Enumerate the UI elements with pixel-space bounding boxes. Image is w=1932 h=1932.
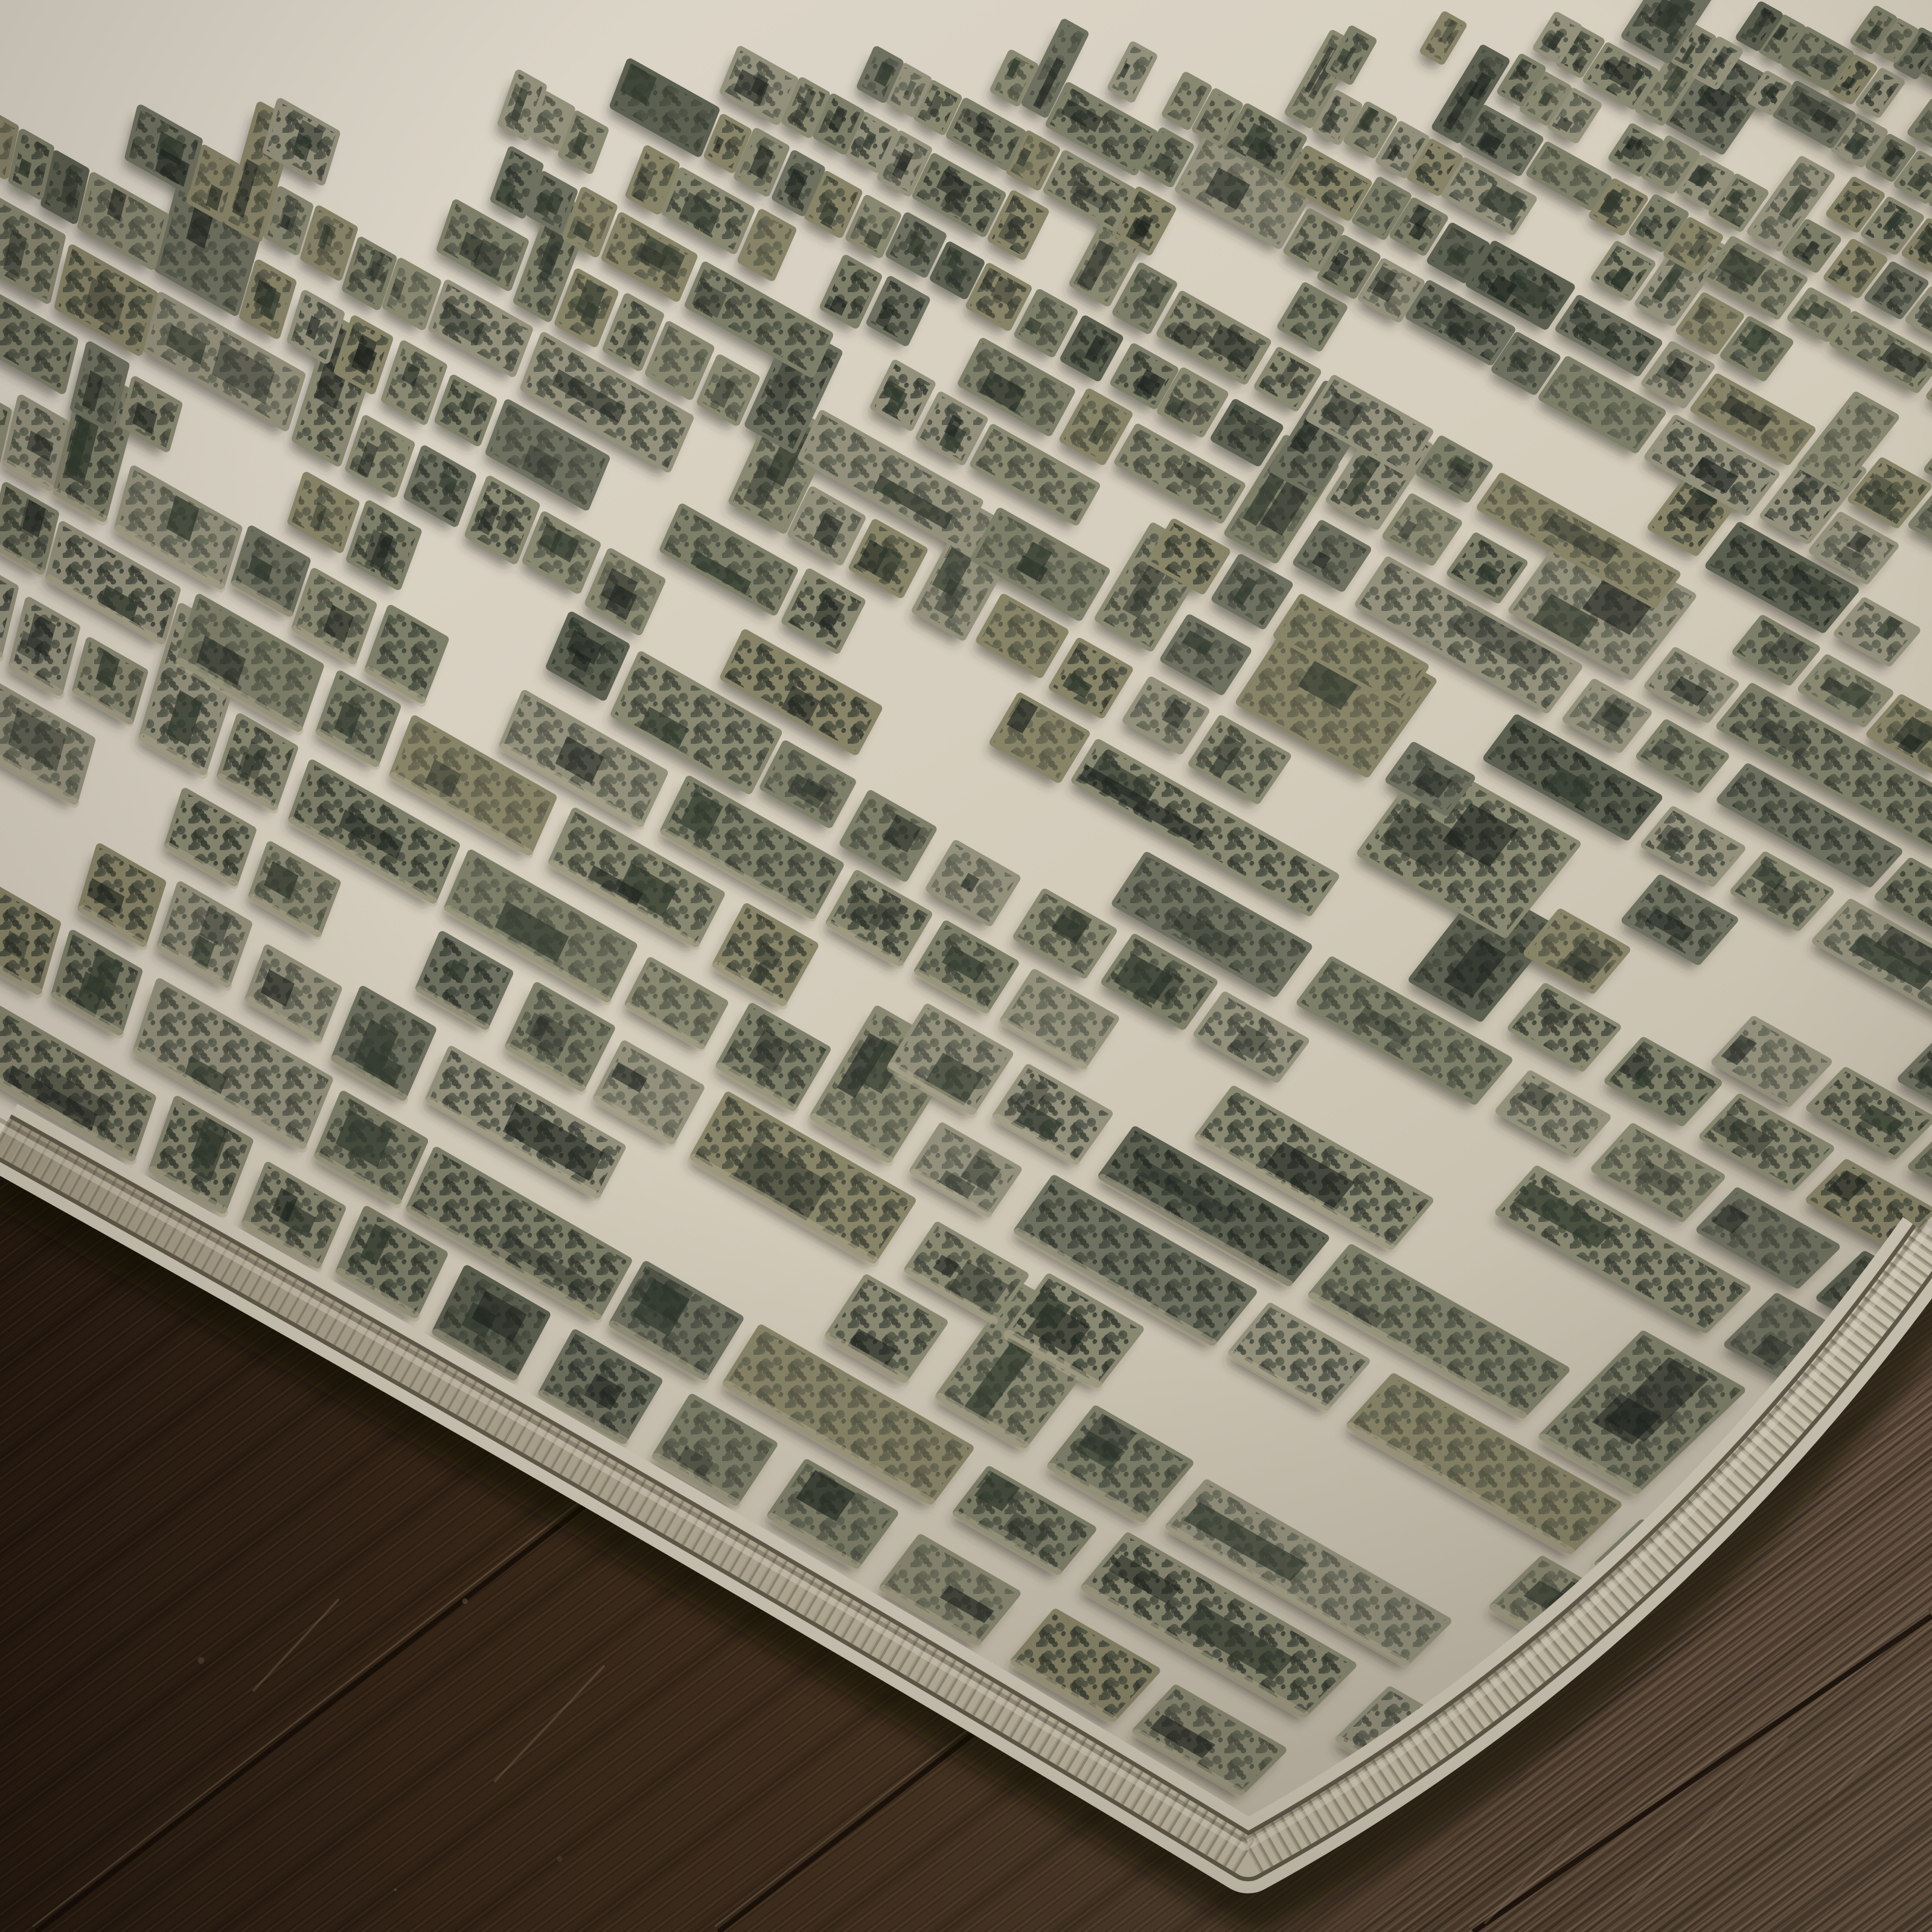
- vignette-overlay: [0, 0, 1932, 1932]
- photo-stage: [0, 0, 1932, 1932]
